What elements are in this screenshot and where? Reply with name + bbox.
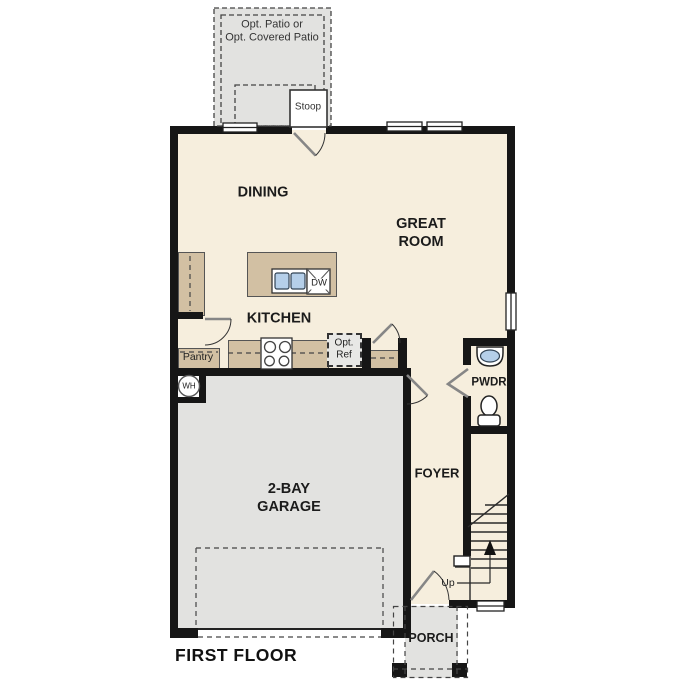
pwdr-label: PWDR (471, 376, 506, 389)
floor-plan: Opt. Patio or Opt. Covered Patio Stoop D… (0, 0, 687, 687)
porch-label: PORCH (408, 631, 453, 645)
staircase (454, 494, 509, 600)
nook-door-swing (392, 324, 400, 343)
stairs-up-label: Up (441, 577, 454, 589)
dining-door-swing (316, 133, 325, 156)
pantry-label: Pantry (183, 351, 213, 363)
front-door-leaf (411, 571, 434, 600)
range-symbol (261, 338, 292, 369)
foyer-label: FOYER (415, 467, 460, 482)
doors (205, 133, 468, 600)
pantry-door-swing (205, 319, 231, 345)
stairs-up-arrow (484, 540, 496, 555)
plan-title: FIRST FLOOR (175, 645, 297, 666)
kitchen-sink (272, 269, 307, 293)
dishwasher-label: DW (310, 279, 328, 290)
great-room-label: GREAT ROOM (396, 215, 446, 251)
stoop-label: Stoop (295, 101, 321, 113)
opt-ref-label: Opt. Ref (335, 338, 354, 361)
garage-entry-door-swing (407, 396, 428, 405)
dining-door-leaf (294, 133, 316, 156)
pwdr-toilet (478, 396, 500, 426)
patio-label: Opt. Patio or Opt. Covered Patio (225, 18, 319, 43)
pwdr-door-leaf (448, 369, 468, 397)
pwdr-sink (477, 347, 503, 366)
garage-entry-door-leaf (407, 375, 428, 396)
dining-label: DINING (238, 185, 289, 202)
nook-door-leaf (373, 324, 392, 343)
water-heater-label: WH (182, 381, 195, 390)
kitchen-label: KITCHEN (247, 311, 311, 328)
garage-label: 2-BAY GARAGE (257, 480, 321, 516)
